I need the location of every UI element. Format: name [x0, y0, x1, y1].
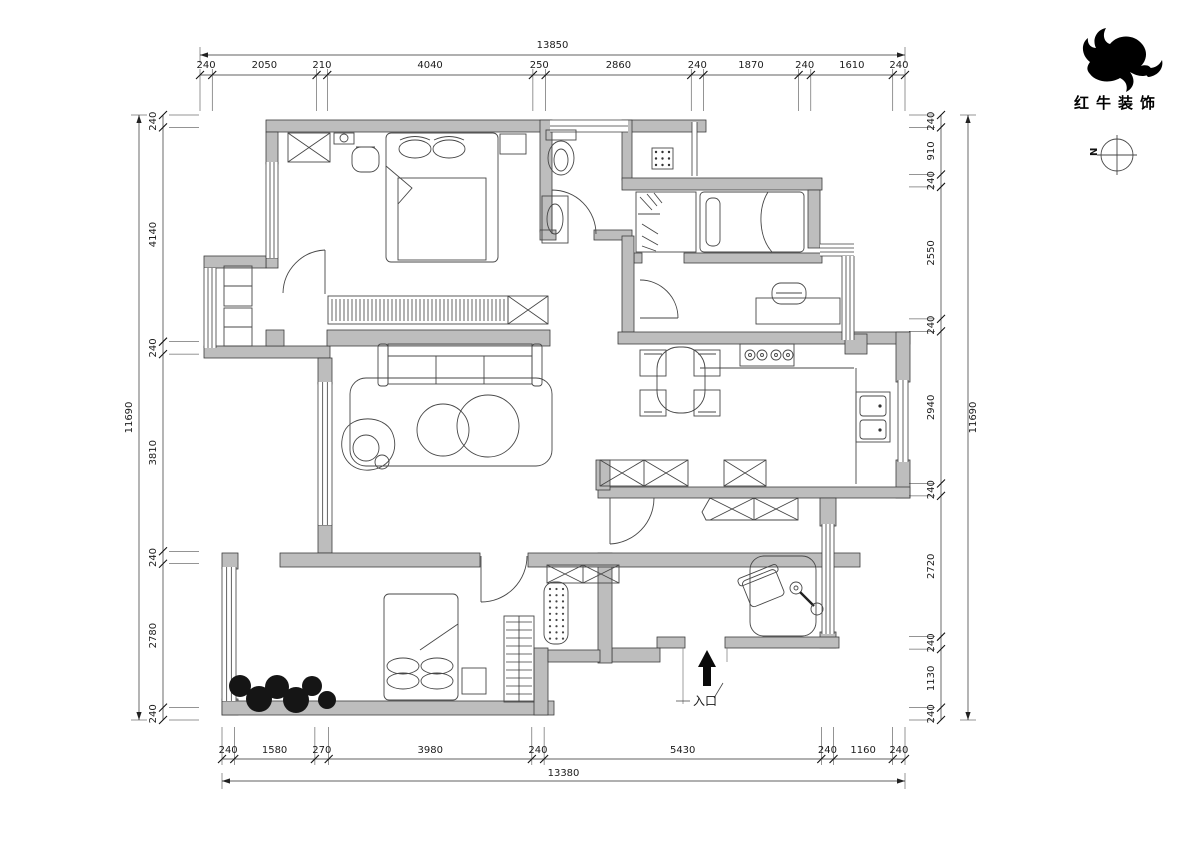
dim-label: 1870	[738, 60, 763, 71]
desk-icon	[756, 283, 840, 324]
coffee-table-icon	[457, 395, 519, 457]
dim-label: 240	[926, 112, 937, 131]
dim-label: 240	[688, 60, 707, 71]
dim-label: 270	[312, 745, 331, 756]
dim-label: 1580	[262, 745, 287, 756]
dim-label: 240	[219, 745, 238, 756]
dim-label: 240	[926, 704, 937, 723]
dim-label: 240	[528, 745, 547, 756]
double-bed-icon	[384, 594, 458, 700]
rug-icon	[350, 378, 552, 466]
dim-label: 5430	[670, 745, 695, 756]
ladder-shelf-icon	[504, 616, 534, 702]
dim-label: 910	[926, 141, 937, 160]
dimension-bottom: 240158027039802405430240116024013380	[218, 727, 909, 789]
dim-label: 240	[889, 60, 908, 71]
desk-lamp-icon	[790, 582, 823, 615]
dim-total-label: 11690	[124, 402, 135, 434]
wardrobe-icon	[328, 296, 548, 324]
stool-icon	[352, 147, 379, 172]
dim-total-label: 13850	[537, 40, 569, 51]
dim-total-label: 13380	[548, 768, 580, 779]
dim-label: 240	[148, 548, 159, 567]
double-bed-icon	[386, 133, 498, 262]
nightstand-icon	[462, 668, 486, 694]
entry-label: 入口	[693, 694, 717, 708]
dim-label: 2780	[148, 623, 159, 648]
dim-label: 240	[889, 745, 908, 756]
counter-edge	[700, 368, 856, 484]
office-chair-icon	[737, 564, 788, 609]
dimension-right: 2409102402550240294024027202401130240116…	[909, 111, 979, 724]
coffee-table-icon	[417, 404, 469, 456]
dim-label: 1130	[926, 666, 937, 691]
title-block: CLIENT 李先生 DESIGN FIRM 南京红牛装饰 PROJECT PR…	[1040, 0, 1188, 848]
dim-label: 210	[312, 60, 331, 71]
dim-label: 1160	[850, 745, 875, 756]
dimension-left: 24041402403810240278024011690	[124, 111, 199, 724]
dim-label: 4140	[148, 222, 159, 247]
dining-set-icon	[640, 347, 720, 416]
hatch-lines	[332, 299, 532, 694]
dim-label: 240	[818, 745, 837, 756]
single-bed-icon	[700, 192, 804, 252]
floor-plan-sheet: { "company": { "name": "红牛装饰" }, "compas…	[0, 0, 1200, 848]
dim-label: 3810	[148, 440, 159, 465]
dim-label: 3980	[418, 745, 443, 756]
dim-label: 240	[926, 480, 937, 499]
dim-label: 240	[926, 316, 937, 335]
dim-label: 240	[197, 60, 216, 71]
dim-label: 1610	[839, 60, 864, 71]
dim-label: 2050	[252, 60, 277, 71]
dim-label: 240	[148, 112, 159, 131]
washer-icon	[288, 133, 354, 162]
dim-label: 240	[795, 60, 814, 71]
dim-label: 240	[926, 633, 937, 652]
dim-label: 2720	[926, 554, 937, 579]
dimension-top: 2402050210404025028602401870240161024013…	[196, 40, 909, 111]
sofa-icon	[378, 344, 542, 386]
dim-label: 250	[530, 60, 549, 71]
dim-label: 4040	[417, 60, 442, 71]
dim-label: 240	[926, 171, 937, 190]
kitchen-sink-icon	[856, 392, 890, 442]
closet-hangers-icon	[636, 192, 696, 252]
balcony-cabinet-icon	[224, 266, 252, 346]
entry-arrow-icon	[698, 650, 716, 686]
nightstand-icon	[500, 134, 526, 154]
dim-label: 240	[148, 338, 159, 357]
study-rug-icon	[750, 556, 816, 636]
dim-label: 240	[148, 704, 159, 723]
dim-label: 2550	[926, 240, 937, 265]
dim-label: 2940	[926, 395, 937, 420]
dim-total-label: 11690	[968, 402, 979, 434]
floor-plan-svg: 入口 2402050210404025028602401870240161024…	[0, 0, 1200, 848]
dim-label: 2860	[606, 60, 631, 71]
stove-icon	[740, 344, 794, 366]
